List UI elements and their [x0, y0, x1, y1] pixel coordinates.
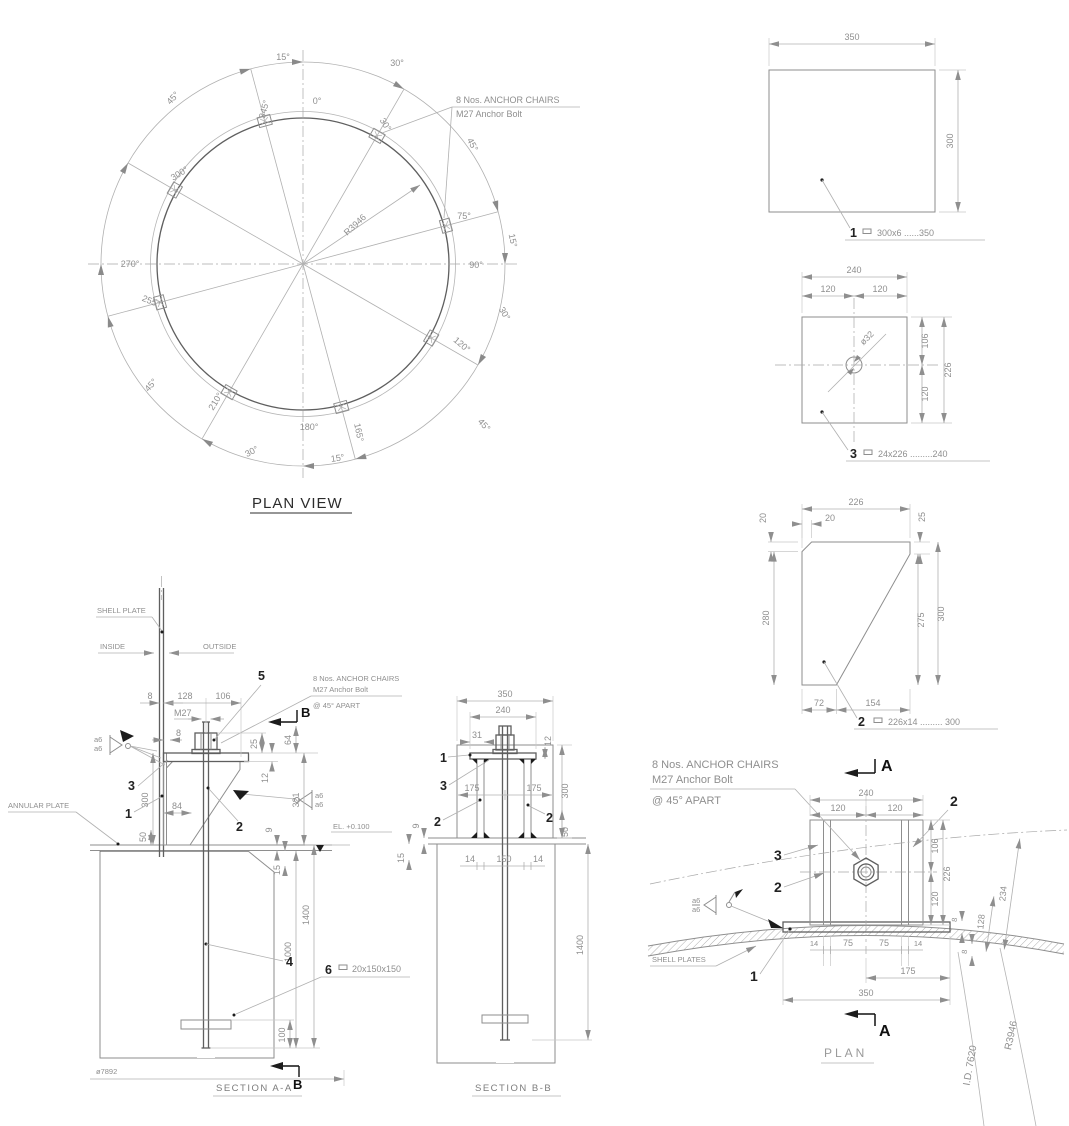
plate-symbol [339, 965, 347, 970]
aa-note-2: M27 Anchor Bolt [313, 685, 369, 694]
dim-hole: ø32 [858, 329, 876, 347]
dim-128: 128 [975, 914, 987, 930]
weld-symbol-left: a6 a6 [94, 730, 165, 765]
item-number-2: 2 [858, 715, 865, 729]
dim-50-bb: 50 [560, 827, 570, 837]
aa-note-1: 8 Nos. ANCHOR CHAIRS [313, 674, 399, 683]
dim-300-bb: 300 [560, 783, 570, 798]
dim-226: 226 [848, 497, 863, 507]
dim-106: 106 [920, 333, 930, 348]
dim-1400: 1400 [301, 905, 311, 925]
foundation [100, 851, 274, 1058]
dim-31: 31 [472, 730, 482, 740]
dim-15: 15 [272, 865, 282, 875]
section-marker-a-bottom: A [844, 1010, 891, 1040]
note-leader [382, 107, 452, 133]
dim-14a: 14 [465, 854, 475, 864]
shell-band-fill [648, 925, 1064, 956]
dim-20v: 20 [758, 513, 768, 523]
weld-size: a6 [315, 800, 323, 809]
dim-300: 300 [945, 133, 955, 148]
dim-240-pd: 240 [858, 788, 873, 798]
plate-2-outline [802, 542, 910, 685]
weld-size: a6 [315, 791, 323, 800]
dim-64: 64 [283, 735, 293, 745]
plan-note-line2: M27 Anchor Bolt [456, 109, 523, 119]
dim-175-pd: 175 [900, 966, 915, 976]
dim-226-pd: 226 [942, 866, 952, 881]
angle-label: 15° [330, 452, 345, 464]
dim-120: 120 [872, 284, 887, 294]
dim-120c-pd: 120 [930, 891, 940, 906]
dim-12: 12 [260, 773, 270, 783]
dim-275: 275 [916, 612, 926, 627]
id-label: I.D. 7620 [962, 1044, 980, 1086]
id-curve [958, 952, 984, 1126]
angle-label: 75° [457, 211, 471, 221]
pd-note-2: M27 Anchor Bolt [652, 774, 733, 786]
plate-1-spec: 300x6 ......350 [877, 228, 934, 238]
dim-350-pd: 350 [858, 988, 873, 998]
dim-106: 106 [215, 691, 230, 701]
marker-b: B [301, 705, 310, 720]
nut-bb [496, 735, 514, 750]
gusset-right [524, 759, 531, 838]
angle-label: 15° [507, 233, 520, 249]
dim-8b-pd: 8 [960, 949, 969, 954]
angle-label: 270° [121, 259, 140, 269]
dim-m27: M27 [174, 708, 192, 718]
item-3-bb: 3 [440, 779, 447, 793]
item-2-bb-right: 2 [546, 811, 553, 825]
angle-label: 45° [476, 417, 493, 434]
dim-25: 25 [917, 512, 927, 522]
dim-14a-pd: 14 [810, 939, 818, 948]
dim-9-bb: 9 [411, 823, 421, 828]
radius-label: R3946 [342, 212, 368, 237]
dim-100: 100 [277, 1027, 287, 1042]
detail-plate-3: ø32 240 120 120 106 120 226 3 24x226 ...… [775, 265, 990, 461]
section-bb-title: SECTION B-B [475, 1083, 552, 1094]
marker-a: A [881, 758, 893, 775]
weld-size: a6 [94, 735, 102, 744]
dia-7892: ø7892 [96, 1067, 117, 1076]
plate-2-spec: 226x14 ......... 300 [888, 717, 960, 727]
angle-label: 90° [469, 260, 483, 270]
shell-plates-label: SHELL PLATES [652, 955, 706, 964]
dim-240: 240 [495, 705, 510, 715]
shell-plate-label: SHELL PLATE [97, 606, 146, 615]
section-aa: SHELL PLATE INSIDE OUTSIDE 8 128 106 M27… [8, 576, 410, 1096]
plan-note-line1: 8 Nos. ANCHOR CHAIRS [456, 95, 560, 105]
section-bb: 350 240 31 12 1 3 175 175 300 2 2 50 9 1… [396, 689, 592, 1096]
dim-8a-pd: 8 [950, 917, 959, 922]
inside-label: INSIDE [100, 642, 125, 651]
dim-9: 9 [264, 827, 274, 832]
marker-a: A [879, 1023, 891, 1040]
dim-175b: 175 [526, 783, 541, 793]
r3946-label: R3946 [1003, 1019, 1020, 1051]
item-6: 6 [325, 963, 332, 977]
plan-title: PLAN [824, 1046, 867, 1060]
chair-plate-plan [810, 820, 923, 925]
dim-350: 350 [497, 689, 512, 699]
angle-label: 180° [300, 422, 319, 432]
dim-120: 120 [820, 284, 835, 294]
dim-175a: 175 [464, 783, 479, 793]
angle-label: 0° [313, 96, 322, 106]
pd-note-1: 8 Nos. ANCHOR CHAIRS [652, 759, 779, 771]
dim-120: 120 [920, 386, 930, 401]
pd-note-3: @ 45° APART [652, 795, 721, 807]
angle-label: 345° [257, 99, 272, 120]
dim-106-pd: 106 [930, 838, 940, 853]
weld-symbol-pd: a6 a6 [692, 889, 783, 928]
dim-50: 50 [138, 832, 148, 842]
item-1-bb: 1 [440, 751, 447, 765]
plate-symbol [864, 450, 872, 455]
item-5: 5 [258, 669, 265, 683]
plan-detail: 8 Nos. ANCHOR CHAIRS M27 Anchor Bolt @ 4… [648, 758, 1067, 1126]
dim-15-bb: 15 [396, 853, 406, 863]
dim-300: 300 [936, 606, 946, 621]
dim-75b-pd: 75 [879, 938, 889, 948]
plan-view: 15° 30° 45° 345° 0° 30° 45° 300° 270° 25… [88, 50, 580, 513]
dim-1400-bb: 1400 [575, 935, 585, 955]
dim-20h: 20 [825, 513, 835, 523]
plate-1-outline [769, 70, 935, 212]
dim-120a-pd: 120 [830, 803, 845, 813]
weld-size: a6 [94, 744, 102, 753]
plate-3-outline [802, 317, 907, 423]
dim-154: 154 [865, 698, 880, 708]
item-3-pd: 3 [774, 847, 782, 863]
item-1: 1 [125, 807, 132, 821]
weld-flag [120, 730, 134, 742]
item-4: 4 [286, 955, 293, 969]
top-plate [164, 753, 249, 762]
angle-label: 300° [169, 164, 190, 183]
dim-12: 12 [543, 736, 553, 746]
el-label: EL. +0.100 [333, 822, 370, 831]
item-number-3: 3 [850, 447, 857, 461]
dim-350: 350 [844, 32, 859, 42]
plate-symbol [874, 718, 882, 723]
section-aa-title: SECTION A-A [216, 1083, 293, 1094]
dim-84: 84 [172, 801, 182, 811]
dim-128: 128 [177, 691, 192, 701]
weld-symbol-right: a6 a6 [233, 790, 323, 810]
angle-label: 15° [276, 52, 290, 62]
angle-label: 45° [142, 376, 159, 393]
angle-label: 45° [165, 89, 182, 106]
plate-symbol [863, 229, 871, 234]
dim-14b-pd: 14 [914, 939, 922, 948]
weld-size: a6 [692, 905, 700, 914]
weld-arrow [233, 790, 249, 800]
dim-321: 321 [291, 792, 301, 807]
item-number-1: 1 [850, 226, 857, 240]
dim-226: 226 [943, 362, 953, 377]
plate-3-spec: 24x226 .........240 [878, 449, 948, 459]
outside-label: OUTSIDE [203, 642, 236, 651]
dim-72: 72 [814, 698, 824, 708]
dim-14b: 14 [533, 854, 543, 864]
angle-label: 165° [352, 422, 366, 443]
item-3: 3 [128, 779, 135, 793]
marker-b: B [293, 1077, 302, 1092]
angle-label: 30° [243, 444, 260, 459]
item-1-pd: 1 [750, 968, 758, 984]
angle-label: 30° [497, 305, 513, 322]
gusset-left [477, 759, 484, 838]
item-2: 2 [236, 820, 243, 834]
item-2-pd-top: 2 [950, 793, 958, 809]
dim-150: 150 [496, 854, 511, 864]
detail-plate-1: 350 300 1 300x6 ......350 [769, 32, 985, 240]
dim-8b: 8 [176, 728, 181, 738]
angle-label: 45° [465, 136, 480, 153]
dim-25: 25 [249, 739, 259, 749]
dim-120b-pd: 120 [887, 803, 902, 813]
item-2-bb-left: 2 [434, 815, 441, 829]
dim-234: 234 [997, 886, 1009, 902]
aa-note-3: @ 45° APART [313, 701, 360, 710]
weld-size: a6 [692, 896, 700, 905]
dim-300: 300 [140, 792, 150, 807]
annular-plate-label: ANNULAR PLATE [8, 801, 69, 810]
dim-240: 240 [846, 265, 861, 275]
plan-view-title: PLAN VIEW [252, 495, 343, 512]
plate-6-spec: 20x150x150 [352, 964, 401, 974]
dim-75a-pd: 75 [843, 938, 853, 948]
anchor-chair-drawing: 15° 30° 45° 345° 0° 30° 45° 300° 270° 25… [0, 0, 1069, 1126]
dim-8: 8 [147, 691, 152, 701]
section-marker-a-top: A [844, 758, 893, 777]
item-2-pd-left: 2 [774, 879, 782, 895]
detail-plate-2: 226 20 20 25 280 275 300 72 154 2 226x14… [758, 497, 998, 729]
dim-280: 280 [761, 610, 771, 625]
angle-label: 30° [390, 58, 404, 68]
